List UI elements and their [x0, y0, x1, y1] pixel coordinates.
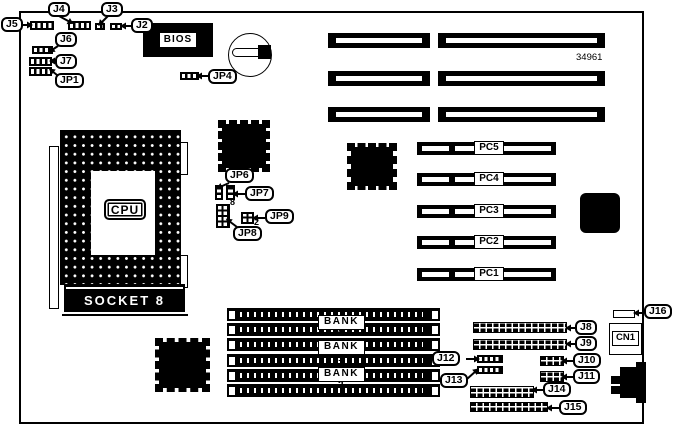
pci-slot-label-pc5: PC5: [474, 141, 504, 155]
j9-pin-header: [473, 339, 567, 350]
simm-slot-1-cap-l: [228, 310, 236, 320]
j7-jumper: [29, 57, 52, 66]
j10-pin-header: [540, 356, 564, 366]
jp9-block: [241, 212, 254, 224]
callout-j12: J12: [432, 351, 460, 366]
callout-jp4: JP4: [208, 69, 237, 84]
j13-jumper-strip: [477, 366, 503, 374]
j11-pin-header: [540, 371, 564, 382]
callout-jp8: JP8: [233, 226, 262, 241]
j14-pin-header: [470, 386, 534, 398]
isa-slot-1: [328, 33, 430, 48]
j16-connector: [613, 310, 635, 318]
simm-slot-2-cap-r: [431, 325, 439, 335]
jp1-jumper: [29, 67, 52, 76]
cn1-connector: CN1: [609, 323, 642, 355]
simm-slot-6-cap-l: [228, 386, 236, 396]
bios-chip: BIOS: [143, 23, 213, 57]
socket-tab-top: [180, 142, 188, 175]
jp8-pin-number: 8: [230, 197, 235, 207]
callout-jp1: JP1: [55, 73, 84, 88]
chip-qfp-top: [218, 120, 270, 172]
j12-jumper-strip: [477, 355, 503, 363]
simm-slot-5-cap-l: [228, 371, 236, 381]
cpu-socket-center: CPU: [91, 171, 155, 255]
bank-label-0: BANK 0: [318, 315, 365, 330]
callout-j15: J15: [559, 400, 587, 415]
callout-j10: J10: [573, 353, 601, 368]
keyboard-connector-pin-top: [611, 376, 620, 384]
jp6-jumper: [215, 185, 223, 200]
keyboard-connector-body: [620, 367, 636, 398]
pci-slot-label-pc2: PC2: [474, 235, 504, 249]
callout-jp7: JP7: [245, 186, 274, 201]
j5-jumper: [30, 21, 54, 30]
callout-jp9: JP9: [265, 209, 294, 224]
battery-slot: [232, 48, 260, 57]
callout-j13: J13: [440, 373, 468, 388]
socket8-bar: SOCKET 8: [64, 284, 185, 312]
cpu-socket: CPU: [60, 130, 181, 285]
simm-slot-6: [227, 384, 440, 397]
jp4-jumper: [180, 72, 199, 80]
bank-label-1: BANK 1: [318, 340, 365, 355]
pci-slot-label-pc1: PC1: [474, 267, 504, 281]
j2-jumper: [110, 23, 122, 30]
callout-j11: J11: [573, 369, 600, 384]
simm-slot-3-cap-r: [431, 340, 439, 350]
isa-slot-2: [438, 33, 605, 48]
callout-j6: J6: [55, 32, 77, 47]
keyboard-connector-pin-bottom: [611, 386, 620, 394]
isa-slot-3: [328, 71, 430, 86]
j3-jumper: [95, 23, 105, 30]
chip-plain-right: [580, 193, 620, 233]
jp8-block: [216, 204, 230, 228]
callout-j9: J9: [575, 336, 597, 351]
cn1-label: CN1: [612, 331, 639, 346]
callout-j8: J8: [575, 320, 597, 335]
simm-slot-2-cap-l: [228, 325, 236, 335]
j8-pin-header: [473, 322, 567, 333]
socket8-underline: [62, 314, 188, 316]
pci-slot-label-pc4: PC4: [474, 172, 504, 186]
bank-label-2: BANK 2: [318, 367, 365, 382]
simm-slot-5-cap-r: [431, 371, 439, 381]
j15-pin-header: [470, 402, 548, 412]
motherboard-diagram: BIOS CPU SOCKET 8 34961 CN1 8 2 PC5PC4PC…: [0, 0, 677, 428]
isa-slot-4: [438, 71, 605, 86]
socket-lever: [49, 146, 59, 309]
simm-slot-4: [227, 354, 440, 367]
j6-jumper: [32, 46, 53, 54]
callout-j14: J14: [543, 382, 571, 397]
simm-slot-6-cap-r: [431, 386, 439, 396]
chip-qfp-bottom: [155, 338, 210, 392]
callout-j5: J5: [1, 17, 23, 32]
bios-label: BIOS: [160, 33, 196, 47]
isa-slot-6: [438, 107, 605, 122]
simm-slot-4-cap-l: [228, 356, 236, 366]
battery-terminal: [258, 45, 271, 59]
callout-j2: J2: [131, 18, 153, 33]
pci-slot-label-pc3: PC3: [474, 204, 504, 218]
callout-j4: J4: [48, 2, 70, 17]
callout-j3: J3: [101, 2, 123, 17]
keyboard-connector-right: [636, 362, 646, 403]
isa-slot-5: [328, 107, 430, 122]
j4-jumper: [68, 21, 91, 30]
callout-jp6: JP6: [225, 168, 254, 183]
simm-slot-3-cap-l: [228, 340, 236, 350]
simm-slot-1-cap-r: [431, 310, 439, 320]
part-number: 34961: [576, 52, 602, 63]
chip-qfp-middle: [347, 143, 397, 190]
callout-j16: J16: [644, 304, 672, 319]
cpu-label-box: CPU: [104, 199, 146, 220]
callout-j7: J7: [55, 54, 77, 69]
